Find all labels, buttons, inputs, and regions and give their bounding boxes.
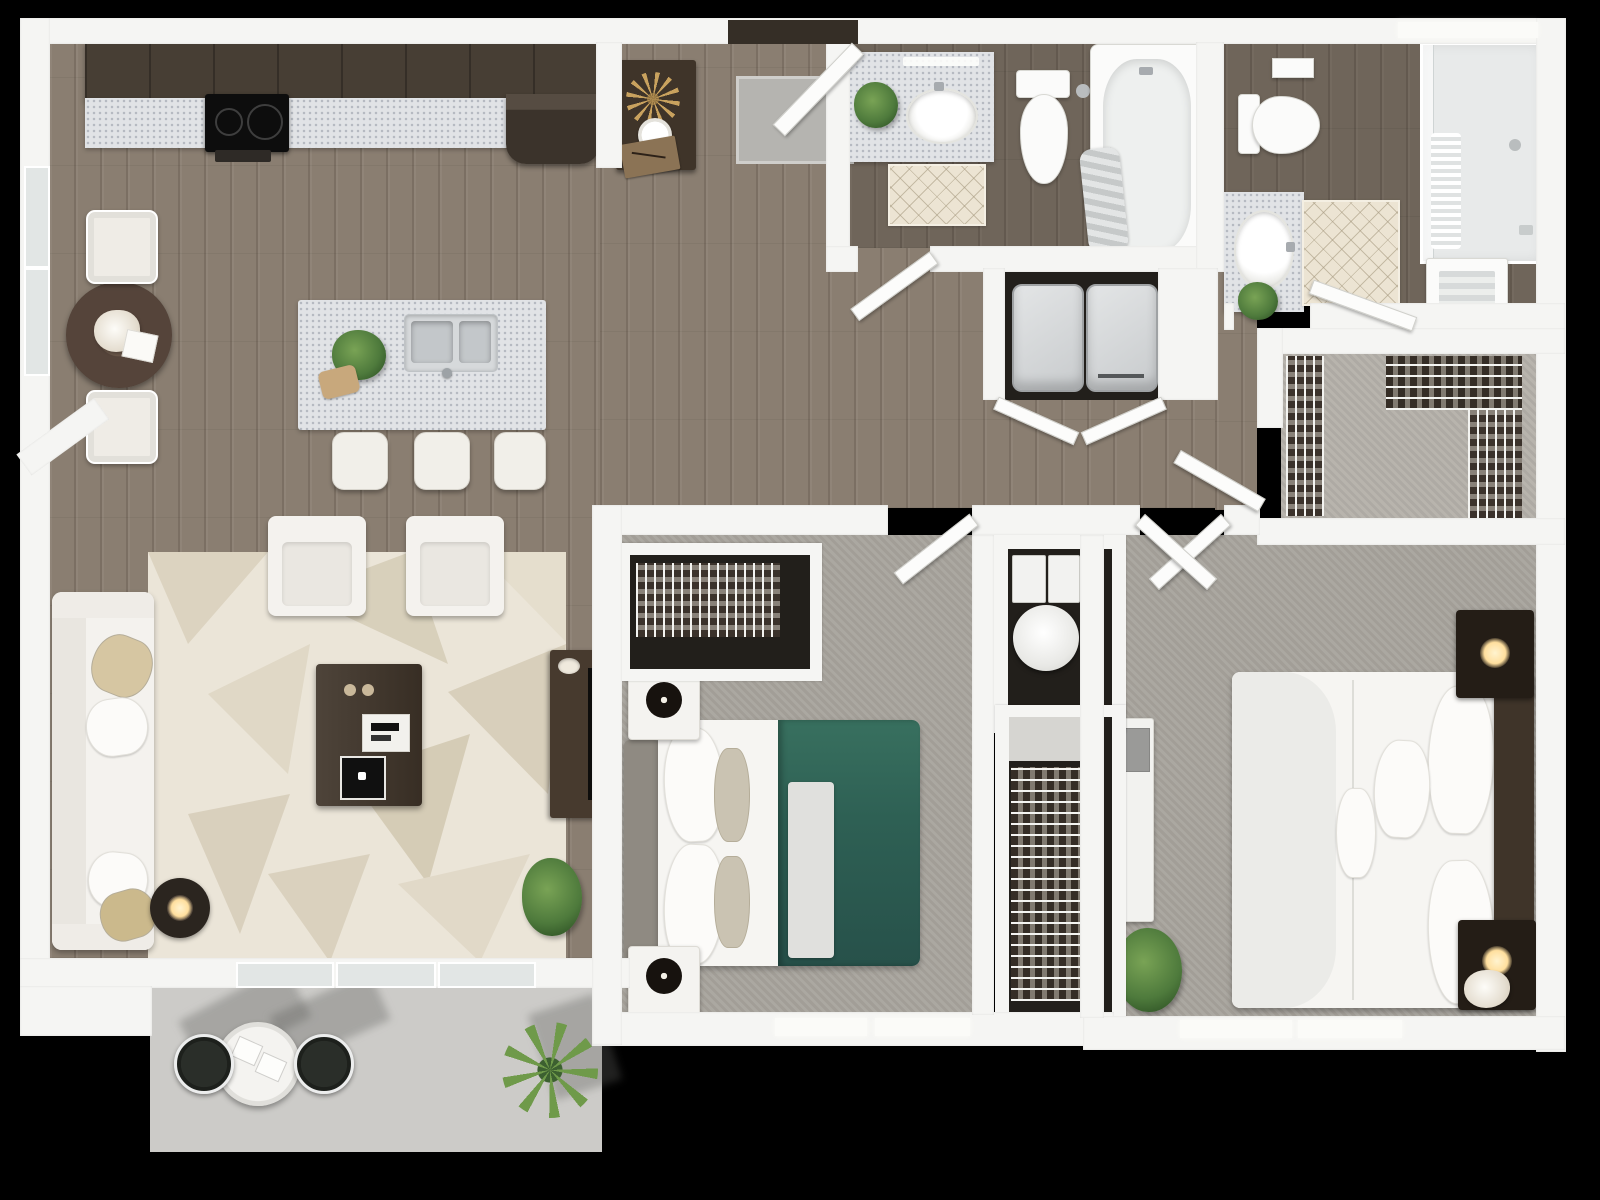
living-room-plant xyxy=(522,858,582,936)
sink-basin xyxy=(459,321,491,363)
armchair xyxy=(406,516,504,616)
decor-bowl xyxy=(558,658,580,674)
master-window xyxy=(1180,1020,1292,1038)
sliding-patio-door-glass xyxy=(236,962,334,988)
hvac-unit xyxy=(1012,555,1046,603)
island-faucet xyxy=(442,368,452,378)
accent-pillow xyxy=(1336,788,1376,878)
black-table-lamp xyxy=(646,958,682,994)
patio-plant xyxy=(502,1022,598,1118)
washer xyxy=(1012,284,1084,392)
bath1-plant xyxy=(854,82,898,128)
closet-rack-hanging-clothes xyxy=(1286,356,1324,516)
remote-control xyxy=(371,723,399,731)
master-window xyxy=(1298,1020,1402,1038)
patio-chair xyxy=(294,1034,354,1094)
patio-chair xyxy=(174,1034,234,1094)
closet-rack-top-shelf xyxy=(1386,356,1522,410)
wall-walkin-top xyxy=(1257,328,1565,354)
coffee-table xyxy=(316,664,422,806)
folded-blanket xyxy=(788,782,834,958)
wall-hall-bottom xyxy=(592,505,888,535)
candle xyxy=(344,684,356,696)
wall-laundry-left xyxy=(983,268,1005,400)
bath2-sink xyxy=(1234,210,1294,290)
bar-stool xyxy=(414,432,470,490)
accent-pillow xyxy=(714,856,750,948)
kitchen-upper-cabinets xyxy=(85,42,602,100)
floor-plan-canvas xyxy=(0,0,1600,1200)
bar-stool xyxy=(494,432,546,490)
wall-entry-divider xyxy=(596,42,622,168)
wall-left xyxy=(20,18,50,990)
bath2-plant xyxy=(1238,282,1278,320)
wall-bedroom1-right xyxy=(972,535,994,1015)
black-table-lamp xyxy=(646,682,682,718)
wall-bedroom1-left xyxy=(592,505,622,1045)
armchair-seat xyxy=(420,542,490,606)
sliding-patio-door-glass xyxy=(438,962,536,988)
bedroom1-headboard xyxy=(624,740,660,966)
armchair-seat xyxy=(282,542,352,606)
dryer xyxy=(1086,284,1158,392)
lamp-glow xyxy=(1480,638,1510,668)
wall-hall-bottom xyxy=(972,505,1140,535)
bath1-vanity-light xyxy=(903,57,979,66)
tray-with-remote xyxy=(362,714,410,752)
wall-corner-bottom-left xyxy=(20,986,152,1036)
closet-wire-shelving xyxy=(1011,767,1082,1001)
wall-walkin-bottom xyxy=(1257,518,1565,545)
sliding-patio-door-glass xyxy=(336,962,436,988)
shower-drain-icon xyxy=(1519,225,1533,235)
dining-bench xyxy=(86,210,158,284)
bath1-rug xyxy=(888,164,986,226)
sink-basin xyxy=(411,321,453,363)
pen-icon xyxy=(632,152,666,159)
utility-closet xyxy=(994,535,1126,733)
bedroom1-closet xyxy=(618,543,822,681)
bedroom1-window xyxy=(875,1018,970,1036)
cooktop xyxy=(205,94,289,152)
sofa-back-cushions xyxy=(52,592,86,950)
dryer-door-line xyxy=(1098,374,1144,378)
hvac-unit xyxy=(1048,555,1080,603)
wall-bath-divider xyxy=(1196,42,1224,272)
shower-bench xyxy=(1431,133,1461,249)
toilet-paper-holder xyxy=(1076,84,1090,98)
front-door xyxy=(728,20,858,44)
bath1-sink xyxy=(906,88,978,144)
bath2-faucet xyxy=(1286,242,1295,252)
water-heater-tank xyxy=(1013,605,1079,671)
wall-master-left xyxy=(1080,535,1104,1018)
refrigerator xyxy=(506,94,600,164)
kitchen-counter xyxy=(85,98,522,148)
wall-bath1-bottom xyxy=(826,246,858,272)
armchair xyxy=(268,516,366,616)
walk-in-shower xyxy=(1420,42,1544,264)
wall-walkin-left xyxy=(1257,328,1283,428)
wall-laundry-right xyxy=(1158,268,1218,400)
master-sheet-fold xyxy=(1232,672,1336,1008)
sofa-arm xyxy=(52,592,154,618)
oven-vent xyxy=(215,150,271,162)
shower-control-icon xyxy=(1509,139,1521,151)
accent-pillow xyxy=(714,748,750,842)
tablet-icon xyxy=(358,772,366,780)
tablet xyxy=(340,756,386,800)
bath2-shelf xyxy=(1272,58,1314,78)
bedroom1-window xyxy=(775,1018,867,1036)
bedroom1-closet-rack xyxy=(636,563,780,637)
shower-window xyxy=(1398,22,1538,38)
window xyxy=(24,268,50,376)
bar-stool xyxy=(332,432,388,490)
island-sink xyxy=(404,314,498,372)
bathtub-faucet xyxy=(1139,67,1153,75)
remote-control xyxy=(371,735,391,741)
closet-shelf-top xyxy=(1009,717,1084,761)
candle xyxy=(362,684,374,696)
folded-towels xyxy=(1439,271,1495,307)
linen-shoe-closet xyxy=(995,705,1126,1039)
window xyxy=(24,166,50,268)
burner-icon xyxy=(215,108,243,136)
burner-icon xyxy=(247,104,283,140)
lamp-glow xyxy=(168,896,192,920)
wall-bath2-bottom xyxy=(1224,303,1234,330)
bath1-faucet xyxy=(934,82,944,91)
